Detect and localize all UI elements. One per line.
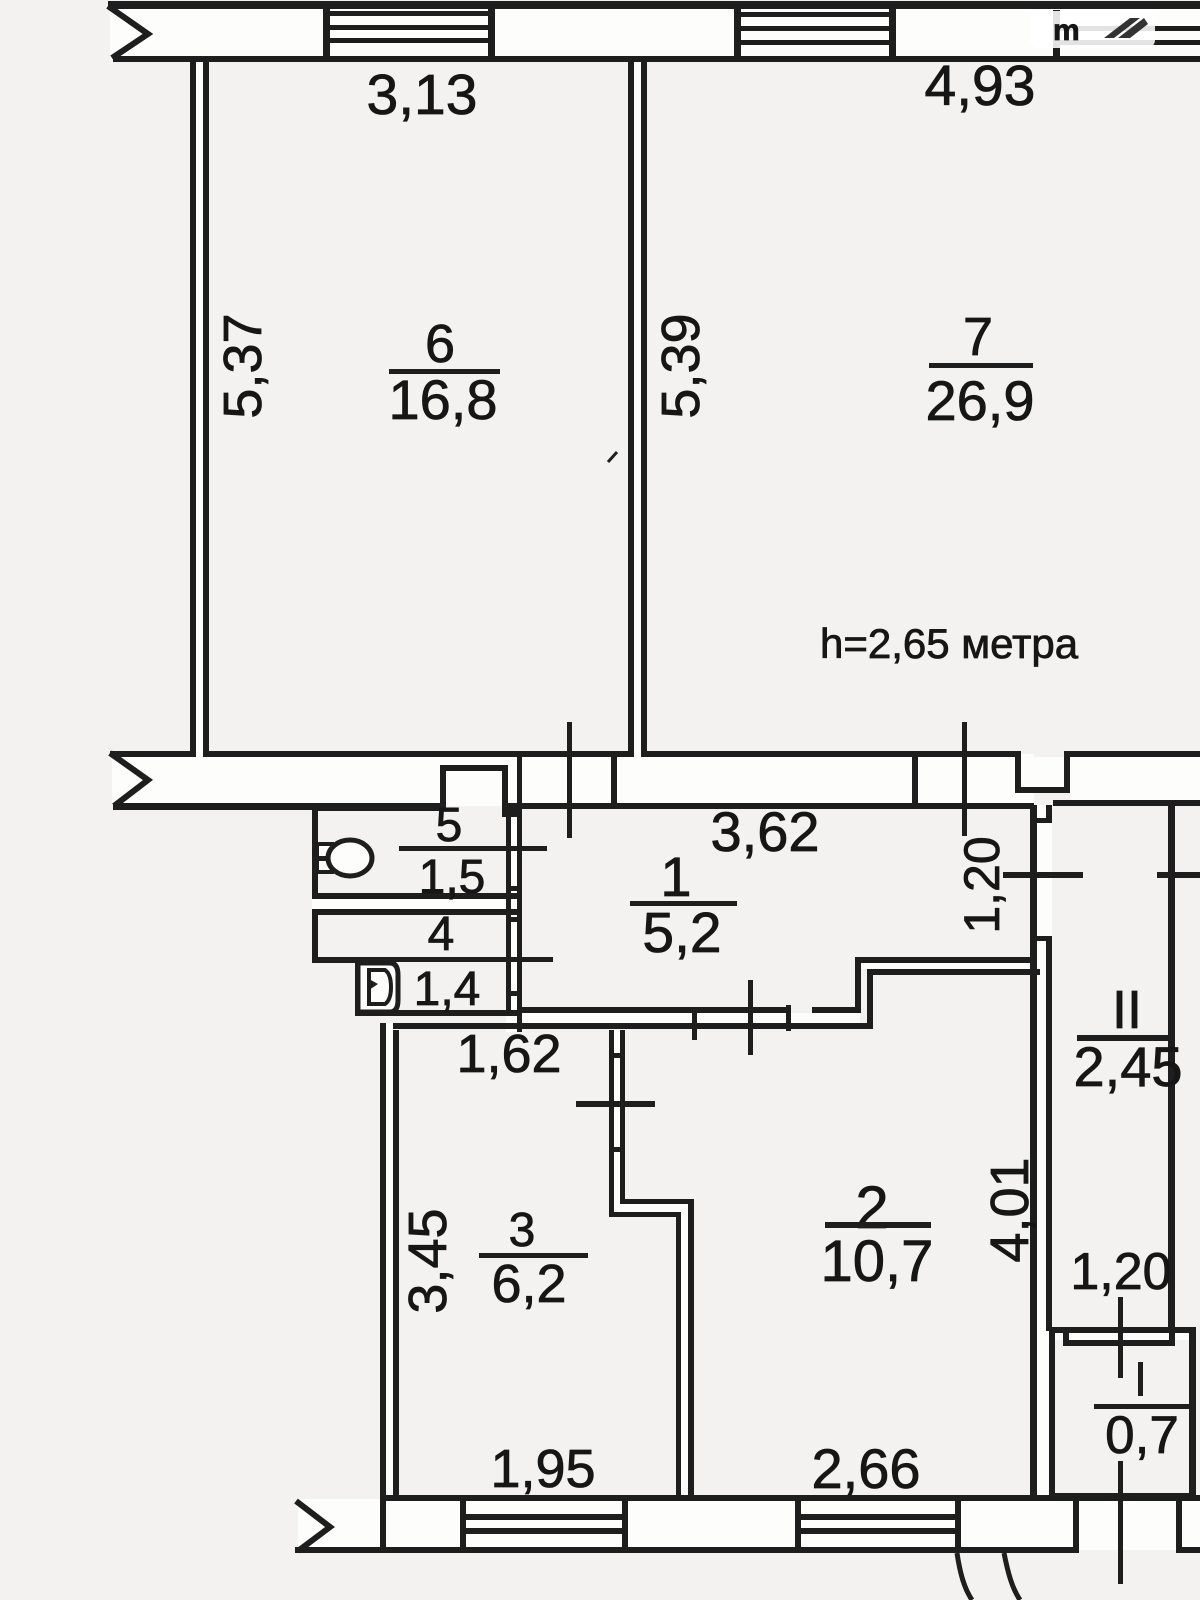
- svg-text:1: 1: [660, 845, 691, 908]
- svg-text:II: II: [1112, 980, 1142, 1040]
- svg-text:4,93: 4,93: [925, 54, 1036, 118]
- svg-text:0,7: 0,7: [1105, 1406, 1179, 1465]
- svg-text:3,13: 3,13: [367, 63, 478, 127]
- svg-text:3,62: 3,62: [711, 800, 820, 863]
- svg-text:6: 6: [425, 314, 455, 374]
- svg-text:m: m: [1053, 14, 1080, 47]
- svg-text:6,2: 6,2: [491, 1254, 566, 1314]
- svg-text:5,2: 5,2: [642, 901, 721, 965]
- svg-text:26,9: 26,9: [926, 369, 1035, 432]
- svg-text:5: 5: [436, 799, 463, 852]
- svg-text:5,37: 5,37: [213, 313, 273, 418]
- svg-text:1,4: 1,4: [414, 963, 481, 1016]
- svg-text:1,95: 1,95: [490, 1439, 595, 1499]
- svg-text:4,01: 4,01: [980, 1157, 1040, 1262]
- svg-text:7: 7: [963, 307, 993, 367]
- svg-text:1,5: 1,5: [419, 851, 486, 904]
- svg-text:2,45: 2,45: [1074, 1035, 1183, 1098]
- svg-text:5,39: 5,39: [651, 313, 711, 418]
- svg-text:4: 4: [428, 908, 455, 961]
- svg-text:1,62: 1,62: [456, 1024, 561, 1084]
- svg-text:2,66: 2,66: [812, 1437, 921, 1500]
- svg-text:16,8: 16,8: [389, 368, 498, 431]
- svg-text:3,45: 3,45: [398, 1208, 458, 1313]
- svg-text:10,7: 10,7: [821, 1229, 934, 1294]
- svg-text:3: 3: [509, 1204, 536, 1257]
- svg-text:1,20: 1,20: [1070, 1243, 1171, 1301]
- svg-text:1,20: 1,20: [954, 836, 1010, 933]
- svg-text:h=2,65 метра: h=2,65 метра: [820, 620, 1079, 667]
